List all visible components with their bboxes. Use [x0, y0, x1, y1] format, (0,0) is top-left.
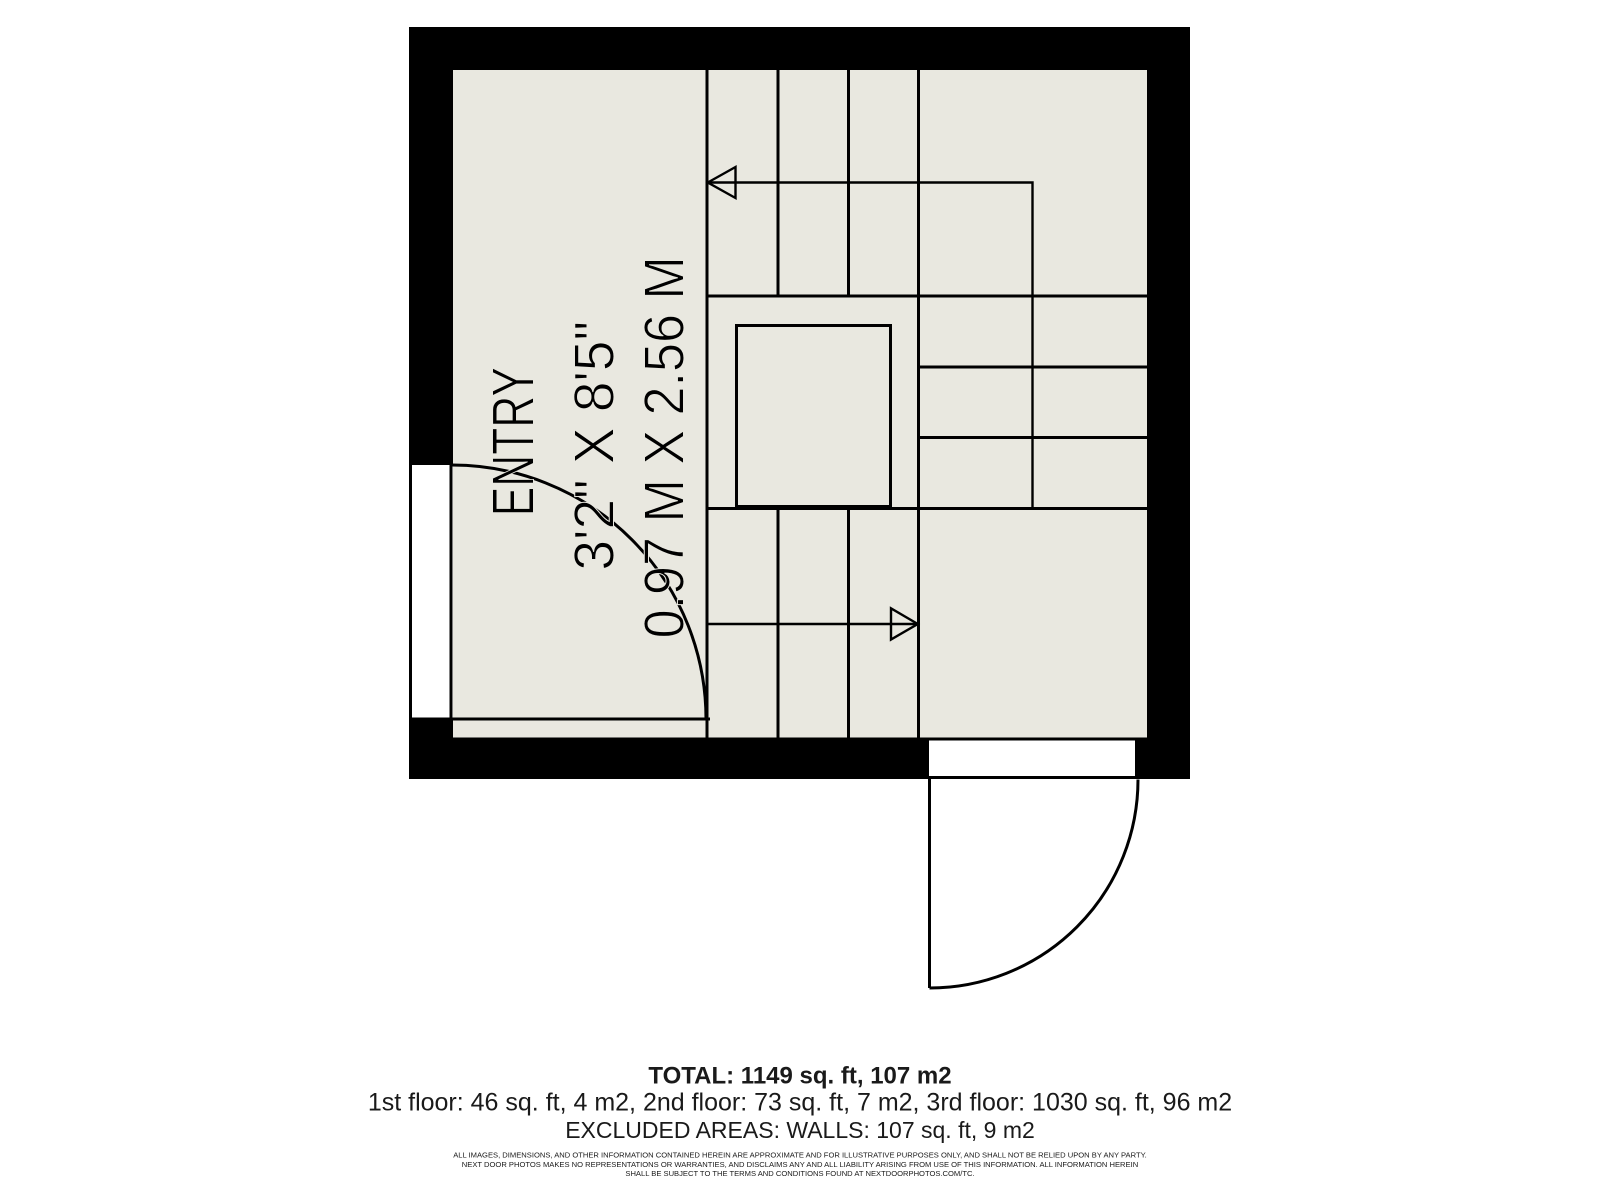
- svg-text:EXCLUDED AREAS: WALLS: 107 sq.: EXCLUDED AREAS: WALLS: 107 sq. ft, 9 m2: [565, 1117, 1035, 1143]
- svg-text:ALL IMAGES, DIMENSIONS, AND OT: ALL IMAGES, DIMENSIONS, AND OTHER INFORM…: [453, 1150, 1147, 1159]
- svg-text:SHALL BE SUBJECT TO THE TERMS: SHALL BE SUBJECT TO THE TERMS AND CONDIT…: [625, 1169, 974, 1178]
- svg-text:0.97 M X 2.56 M: 0.97 M X 2.56 M: [632, 256, 696, 638]
- svg-text:TOTAL: 1149 sq. ft, 107 m2: TOTAL: 1149 sq. ft, 107 m2: [648, 1063, 951, 1090]
- svg-text:3'2" X 8'5": 3'2" X 8'5": [562, 321, 626, 571]
- svg-text:NEXT DOOR PHOTOS MAKES NO REPR: NEXT DOOR PHOTOS MAKES NO REPRESENTATION…: [462, 1160, 1138, 1169]
- svg-text:1st floor: 46 sq. ft, 4 m2, 2n: 1st floor: 46 sq. ft, 4 m2, 2nd floor: 7…: [368, 1089, 1232, 1117]
- svg-text:ENTRY: ENTRY: [482, 367, 548, 516]
